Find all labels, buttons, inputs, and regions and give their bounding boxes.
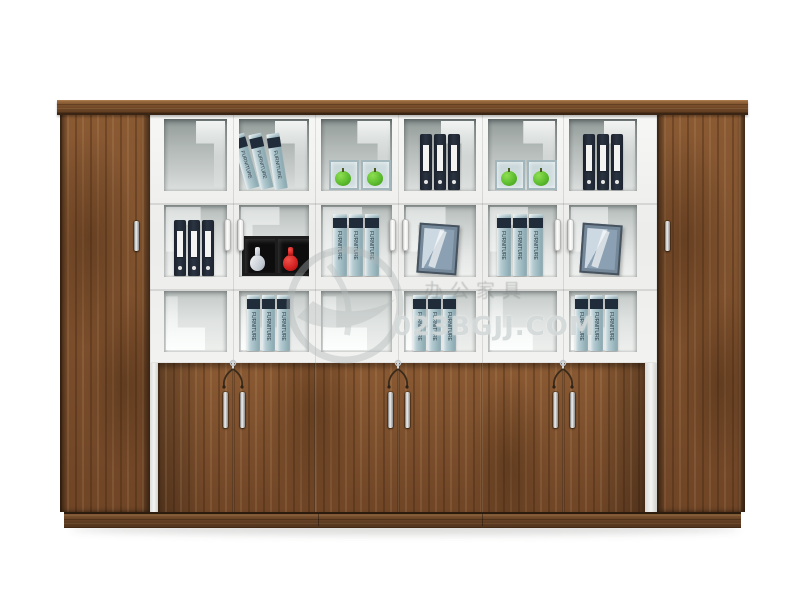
book-spine-label: FURNITURE	[532, 231, 538, 260]
glass-reflection	[323, 296, 367, 350]
book-spine-label: FURNITURE	[250, 312, 256, 341]
door-seam	[482, 111, 483, 363]
glass-cell-r1c4	[404, 119, 476, 191]
cupboard-handle	[240, 392, 245, 428]
glass-reflection	[490, 296, 533, 350]
book-spine-label: FURNITURE	[280, 312, 286, 341]
plinth-seam	[318, 514, 319, 526]
book-spine-label: FURNITURE	[368, 231, 374, 260]
book-spine-label: FURNITURE	[608, 312, 614, 341]
book: FURNITURE	[333, 214, 347, 276]
right-wood-door	[657, 111, 745, 512]
glass-cell-r2c3: FURNITURE FURNITURE FURNITURE	[321, 205, 392, 277]
book-spine-label: FURNITURE	[500, 231, 506, 260]
glass-cell-r1c1	[164, 119, 227, 191]
display-cube	[275, 236, 309, 276]
binder-group	[583, 134, 623, 190]
book: FURNITURE	[497, 214, 511, 276]
glass-cell-r2c2	[239, 205, 309, 277]
book: FURNITURE	[413, 295, 426, 351]
cabinet-top-trim	[57, 100, 748, 115]
glass-cell-r3c4: FURNITURE FURNITURE FURNITURE	[404, 291, 476, 352]
key-with-tassel-icon	[215, 359, 251, 393]
book-group: FURNITURE FURNITURE FURNITURE	[413, 295, 456, 351]
binder	[202, 220, 214, 276]
glass-cube	[527, 160, 557, 190]
book-spine-label: FURNITURE	[239, 150, 253, 179]
book: FURNITURE	[262, 295, 275, 351]
plinth-base	[64, 512, 741, 528]
green-apple	[367, 171, 383, 186]
door-seam	[233, 111, 234, 363]
key-with-tassel-icon	[380, 359, 416, 393]
photo-frame	[416, 223, 459, 276]
door-seam	[315, 111, 316, 363]
product-photo: FURNITURE FURNITURE FURNITURE	[0, 0, 800, 600]
glass-cell-r3c3	[321, 291, 392, 352]
glass-door-handle	[237, 219, 244, 251]
book-cap	[249, 136, 264, 149]
book-group: FURNITURE FURNITURE FURNITURE	[247, 295, 290, 351]
cupboard-door-seam	[314, 363, 316, 512]
cupboard-door-seam	[481, 363, 483, 512]
book-spine-label: FURNITURE	[516, 231, 522, 260]
glass-door-handle	[567, 219, 574, 251]
glass-door-handle	[402, 219, 409, 251]
glass-cube	[329, 160, 359, 190]
cupboard-handle	[388, 392, 393, 428]
glass-reflection	[166, 296, 205, 350]
cupboard-handle	[405, 392, 410, 428]
book: FURNITURE	[605, 295, 618, 351]
glass-cell-r2c6	[569, 205, 637, 277]
glass-cell-r3c1	[164, 291, 227, 352]
book-spine-label: FURNITURE	[265, 312, 271, 341]
book-spine-label: FURNITURE	[352, 231, 358, 260]
binder	[434, 134, 446, 190]
binder	[420, 134, 432, 190]
binder-group	[174, 220, 214, 276]
glass-cell-r2c5: FURNITURE FURNITURE FURNITURE	[488, 205, 557, 277]
left-wood-door	[60, 111, 150, 512]
binder	[611, 134, 623, 190]
book-spine-label: FURNITURE	[446, 312, 452, 341]
glass-cell-r3c5	[488, 291, 557, 352]
binder-group	[420, 134, 460, 190]
cupboard-handle	[223, 392, 228, 428]
left-door-handle	[134, 221, 139, 251]
binder	[174, 220, 186, 276]
green-apple	[501, 171, 517, 186]
photo-frame	[579, 223, 622, 276]
book: FURNITURE	[349, 214, 363, 276]
glass-cube	[361, 160, 391, 190]
binder	[583, 134, 595, 190]
glass-door-handle	[554, 219, 561, 251]
book-spine-label: FURNITURE	[272, 150, 282, 179]
plinth-seam	[482, 514, 483, 526]
door-seam	[563, 111, 564, 363]
door-seam	[398, 111, 399, 363]
book: FURNITURE	[277, 295, 290, 351]
glass-cube	[495, 160, 525, 190]
glass-cell-r1c3	[321, 119, 392, 191]
book: FURNITURE	[428, 295, 441, 351]
display-cube	[242, 236, 279, 276]
white-vase	[250, 255, 265, 271]
green-apple	[533, 171, 549, 186]
book-spine-label: FURNITURE	[336, 231, 342, 260]
glass-reflection	[196, 121, 225, 187]
glass-cell-r1c6	[569, 119, 637, 191]
glass-cell-r2c4	[404, 205, 476, 277]
book: FURNITURE	[513, 214, 527, 276]
glass-cell-r1c5	[488, 119, 557, 191]
book-cap	[267, 137, 281, 149]
book: FURNITURE	[575, 295, 588, 351]
binder	[448, 134, 460, 190]
glass-cell-r3c2: FURNITURE FURNITURE FURNITURE	[239, 291, 309, 352]
book-group: FURNITURE FURNITURE FURNITURE	[575, 295, 618, 351]
book: FURNITURE	[247, 295, 260, 351]
red-vase	[283, 255, 298, 271]
book: FURNITURE	[443, 295, 456, 351]
book-group: FURNITURE FURNITURE FURNITURE	[333, 214, 379, 276]
book-cap	[239, 136, 248, 149]
glass-cell-r1c2: FURNITURE FURNITURE FURNITURE	[239, 119, 309, 191]
right-door-handle	[665, 221, 670, 251]
key-with-tassel-icon	[545, 359, 581, 393]
book-spine-label: FURNITURE	[593, 312, 599, 341]
binder	[597, 134, 609, 190]
book-spine-label: FURNITURE	[431, 312, 437, 341]
glass-door-handle	[389, 219, 396, 251]
book-group: FURNITURE FURNITURE FURNITURE	[497, 214, 543, 276]
green-apple	[335, 171, 351, 186]
book: FURNITURE	[590, 295, 603, 351]
cupboard-handle	[553, 392, 558, 428]
book: FURNITURE	[529, 214, 543, 276]
glass-cell-r3c6: FURNITURE FURNITURE FURNITURE	[569, 291, 637, 352]
binder	[188, 220, 200, 276]
book-spine-label: FURNITURE	[578, 312, 584, 341]
glass-door-handle	[224, 219, 231, 251]
book: FURNITURE	[365, 214, 379, 276]
book-spine-label: FURNITURE	[416, 312, 422, 341]
book-spine-label: FURNITURE	[255, 150, 267, 179]
cupboard-handle	[570, 392, 575, 428]
glass-cell-r2c1	[164, 205, 227, 277]
